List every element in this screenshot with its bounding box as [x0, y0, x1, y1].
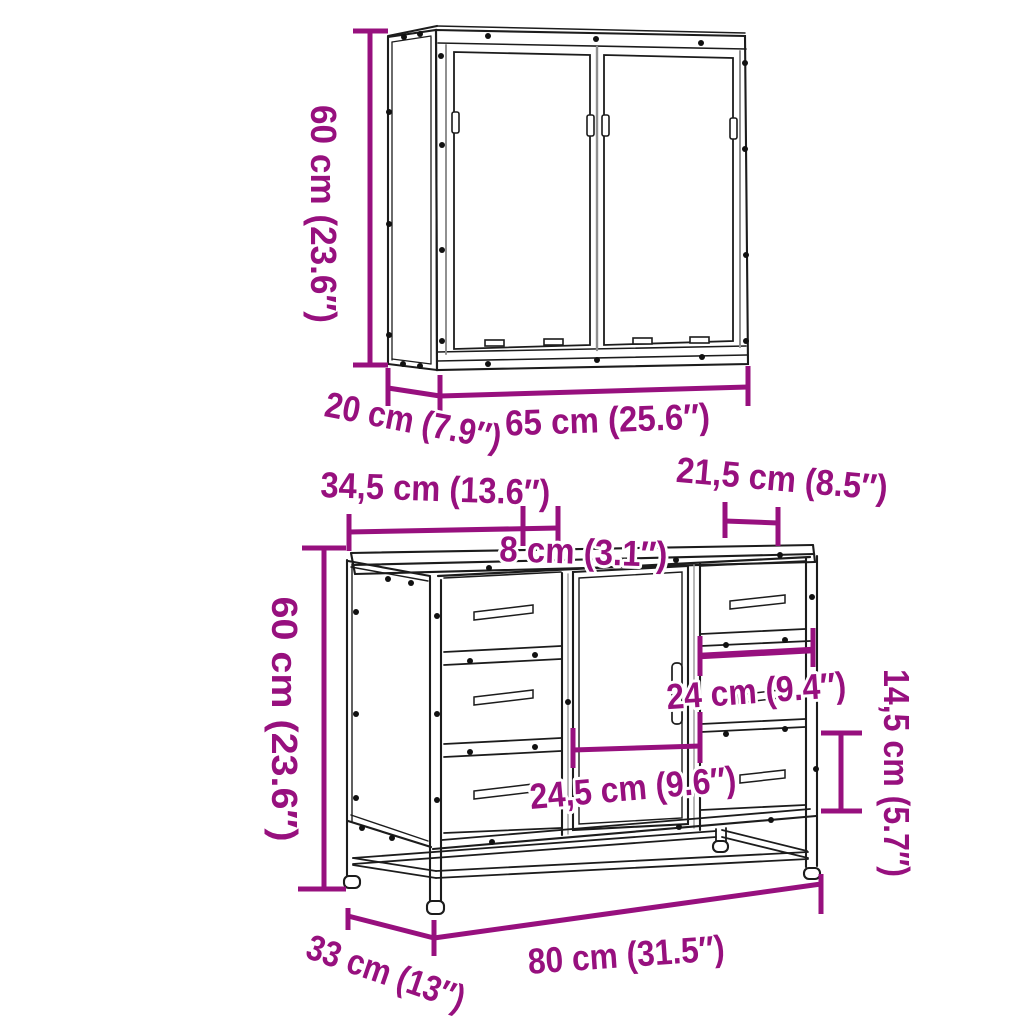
svg-text:60 cm (23.6″): 60 cm (23.6″) — [264, 597, 305, 842]
svg-text:14,5 cm (5.7″): 14,5 cm (5.7″) — [876, 669, 917, 877]
svg-text:8 cm (3.1″): 8 cm (3.1″) — [499, 528, 668, 575]
svg-text:60 cm (23.6″): 60 cm (23.6″) — [303, 105, 344, 323]
svg-text:34,5 cm (13.6″): 34,5 cm (13.6″) — [320, 464, 551, 513]
svg-text:65 cm (25.6″): 65 cm (25.6″) — [504, 395, 710, 443]
